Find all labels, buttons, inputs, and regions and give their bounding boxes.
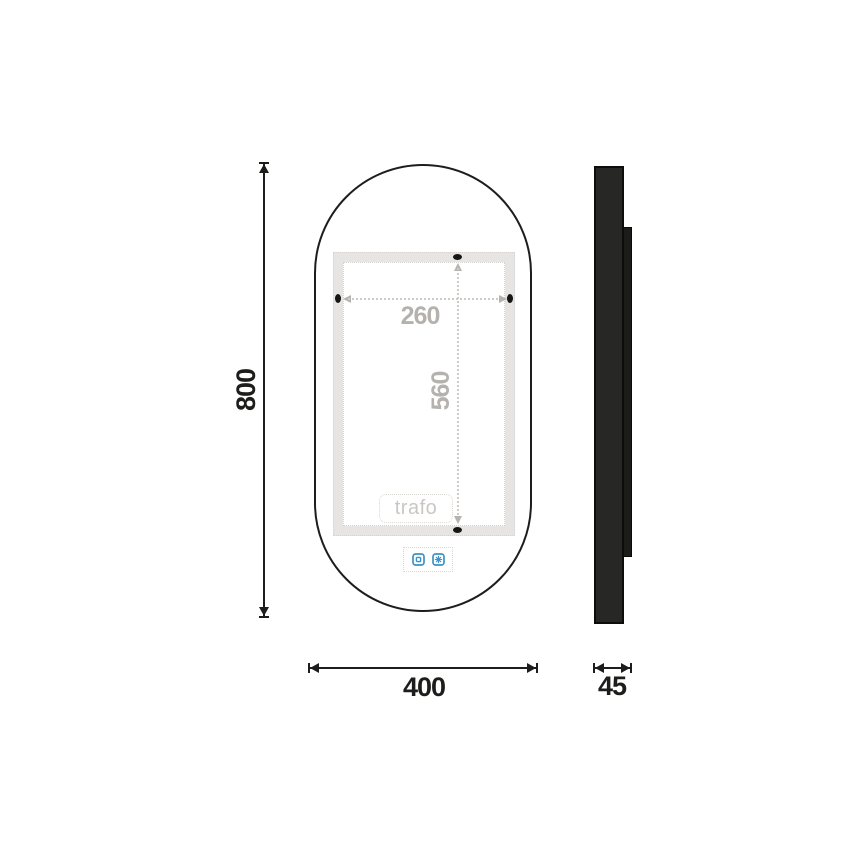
- arrowhead-right-icon: [499, 295, 507, 303]
- dimension-label-led-height: 560: [428, 351, 454, 431]
- mounting-hole-bottom: [453, 527, 462, 533]
- dimension-label-height: 800: [233, 350, 259, 430]
- mounting-hole-left: [335, 294, 341, 303]
- arrowhead-down-icon: [259, 607, 269, 616]
- mounting-hole-top: [453, 254, 462, 260]
- dimension-label-width: 400: [384, 673, 464, 701]
- arrowhead-right-icon: [527, 663, 536, 673]
- dimension-label-led-width: 260: [380, 303, 460, 329]
- touch-sensor-box: [403, 547, 453, 572]
- trafo-box: trafo: [379, 494, 453, 523]
- trafo-label: trafo: [395, 497, 438, 520]
- arrowhead-down-icon: [454, 516, 462, 524]
- mirror-dimension-drawing: 260 560 trafo: [0, 0, 868, 868]
- mounting-hole-right: [507, 294, 513, 303]
- light-toggle-icon: [412, 553, 425, 566]
- defog-icon: [432, 553, 445, 566]
- mirror-side-profile: [594, 166, 624, 624]
- dimension-label-depth: 45: [572, 672, 652, 700]
